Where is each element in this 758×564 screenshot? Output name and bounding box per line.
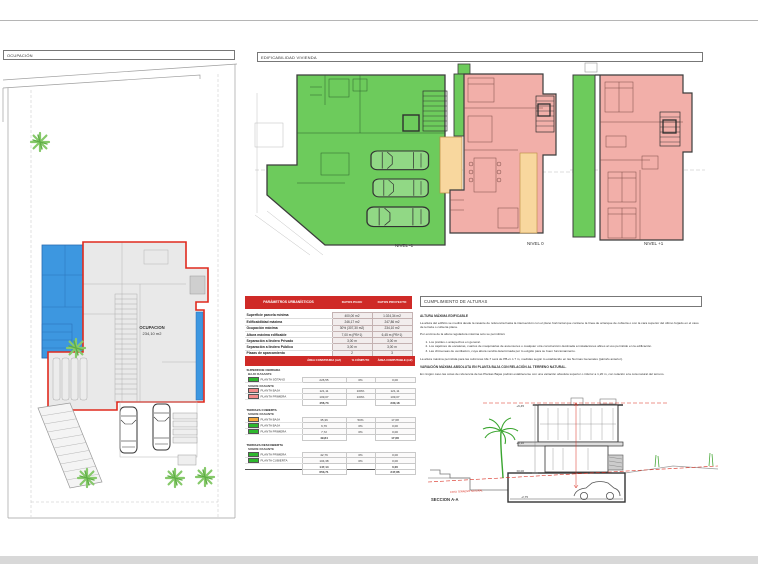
palm-tree-icon [483, 418, 518, 478]
green-terrace-strip [454, 74, 464, 136]
cumplimiento-section: CUMPLIMIENTO DE ALTURAS ALTURA MÁXIMA ED… [420, 296, 702, 379]
roof-chimney [600, 399, 616, 404]
car-icon [153, 404, 170, 450]
col-empty [245, 356, 302, 366]
color-swatch [248, 417, 259, 422]
drawing-sheet: OCUPACIÓN EDIFICABILIDAD VIVIENDA [0, 0, 758, 564]
pool [42, 245, 88, 358]
color-swatch [248, 458, 259, 463]
pink-floor-area [595, 75, 692, 240]
building-section [508, 398, 625, 502]
list-item: Los cajetines de escaleras, cuartos de m… [429, 344, 702, 348]
level-label: +6,45 [516, 404, 524, 408]
occupation-label: OCUPACION [139, 325, 164, 330]
lightwell [255, 123, 283, 147]
table-row: TERRAZA CUBIERTA [245, 406, 415, 413]
floor-plan-nivel-0: NIVEL 0 [440, 60, 580, 252]
parametros-table: PARÁMETROS URBANÍSTICOS DATOS PGOU DATOS… [245, 296, 413, 357]
ocupacion-title-text: OCUPACIÓN [7, 53, 33, 58]
col-datos-proyecto: DATOS PROYECTO [372, 296, 412, 309]
section-title-ocupacion: OCUPACIÓN [3, 50, 235, 60]
altura-paragraph: Por encima de la altura reguladora máxim… [420, 332, 702, 336]
subtotal-area: 653,71 [302, 469, 346, 475]
terrain-steps [430, 470, 508, 490]
table-row: TERRAZA DESCUBIERTA [245, 440, 415, 447]
green-terrace-left [573, 75, 595, 237]
pink-floor-area [450, 74, 556, 233]
level-label: ±0,00 [517, 469, 525, 473]
level-label: +3,10 [516, 441, 524, 445]
plan-label-nivel-m1: NIVEL -1 [395, 243, 414, 248]
altura-exceptions-list: Los pretiles o antepechos en general. Lo… [429, 340, 702, 354]
roof-chimney [571, 398, 583, 405]
car-icon [371, 151, 429, 170]
color-swatch [248, 388, 259, 393]
balcony-slab [518, 442, 623, 446]
variacion-heading: VARIACIÓN MÁXIMA ABSOLUTA EN PLANTA BAJA… [420, 365, 702, 370]
col-area-construida: ÁREA CONSTRUIDA (m2) [302, 356, 346, 366]
plan-label-nivel-p1: NIVEL +1 [644, 241, 664, 246]
altura-maxima-heading: ALTURA MÁXIMA EDIFICABLE [420, 314, 702, 319]
lap-pool-strip [196, 312, 203, 400]
altura-paragraph: En ningún caso las cotas de referencia d… [420, 372, 702, 376]
col-computo: % CÓMPUTO [346, 356, 375, 366]
tan-terrace-left [440, 137, 462, 193]
car-icon [367, 207, 429, 227]
cota-terreno-label: COTA TERRENO NATURAL [450, 488, 484, 494]
altura-paragraph: La altura del edificio se medirá desde l… [420, 321, 702, 330]
edificabilidad-title-text: EDIFICABILIDAD VIVIENDA [261, 55, 317, 60]
section-title-cumplimiento: CUMPLIMIENTO DE ALTURAS [420, 296, 702, 307]
section-drawing: +6,45 +3,10 ±0,00 -2,75 COTA TERRENO NAT… [428, 398, 724, 518]
palm-tree-icon [196, 468, 214, 486]
floor-plan-nivel-p1: NIVEL +1 [570, 60, 705, 252]
section-label: TERRAZA DESCUBIERTA [245, 440, 415, 447]
garage-cars [367, 151, 429, 227]
car-icon [120, 407, 137, 453]
parametros-title: PARÁMETROS URBANÍSTICOS [245, 296, 332, 309]
table-header-row: PARÁMETROS URBANÍSTICOS DATOS PGOU DATOS… [245, 296, 412, 309]
driveway-ramp [38, 403, 102, 488]
subtotal-computable: 247,86 [375, 469, 415, 475]
color-swatch [248, 377, 259, 382]
color-swatch [248, 423, 259, 428]
altura-paragraph: La altura máxima permitida para las subz… [420, 357, 702, 361]
list-item: Los pretiles o antepechos en general. [429, 340, 702, 344]
col-area-computable: ÁREA COMPUTABLE (m2) [375, 356, 415, 366]
level-label: -2,75 [521, 495, 528, 499]
seccion-label: SECCION A-A [431, 497, 459, 502]
table-row: 653,71247,86 [245, 469, 415, 475]
roof-box [585, 63, 597, 72]
sheet-top-rule [0, 20, 758, 21]
color-swatch [248, 452, 259, 457]
palm-tree-icon [31, 133, 49, 151]
color-swatch [248, 394, 259, 399]
palm-tree-icon [166, 469, 184, 487]
plant-icon [655, 453, 713, 467]
occupation-area: 234,10 m2 [143, 331, 163, 336]
site-plan-drawing: OCUPACION 234,10 m2 [2, 62, 238, 520]
plan-label-nivel-0: NIVEL 0 [527, 241, 544, 246]
green-terrace-small [458, 64, 470, 74]
section-label: TERRAZA CUBIERTA [245, 406, 415, 413]
table-header-row: ÁREA CONSTRUIDA (m2) % CÓMPUTO ÁREA COMP… [245, 356, 415, 366]
tan-terrace-right [520, 153, 537, 233]
col-datos-pgou: DATOS PGOU [332, 296, 372, 309]
car-icon [373, 179, 428, 197]
footer-band [0, 556, 758, 564]
color-swatch [248, 429, 259, 434]
palm-tree-icon [78, 469, 96, 487]
roof-skylight [190, 276, 205, 294]
superficies-table: ÁREA CONSTRUIDA (m2) % CÓMPUTO ÁREA COMP… [245, 356, 416, 475]
list-item: Las chimeneas de ventilación, cuya altur… [429, 349, 702, 353]
palm-tree-icon [67, 339, 85, 357]
